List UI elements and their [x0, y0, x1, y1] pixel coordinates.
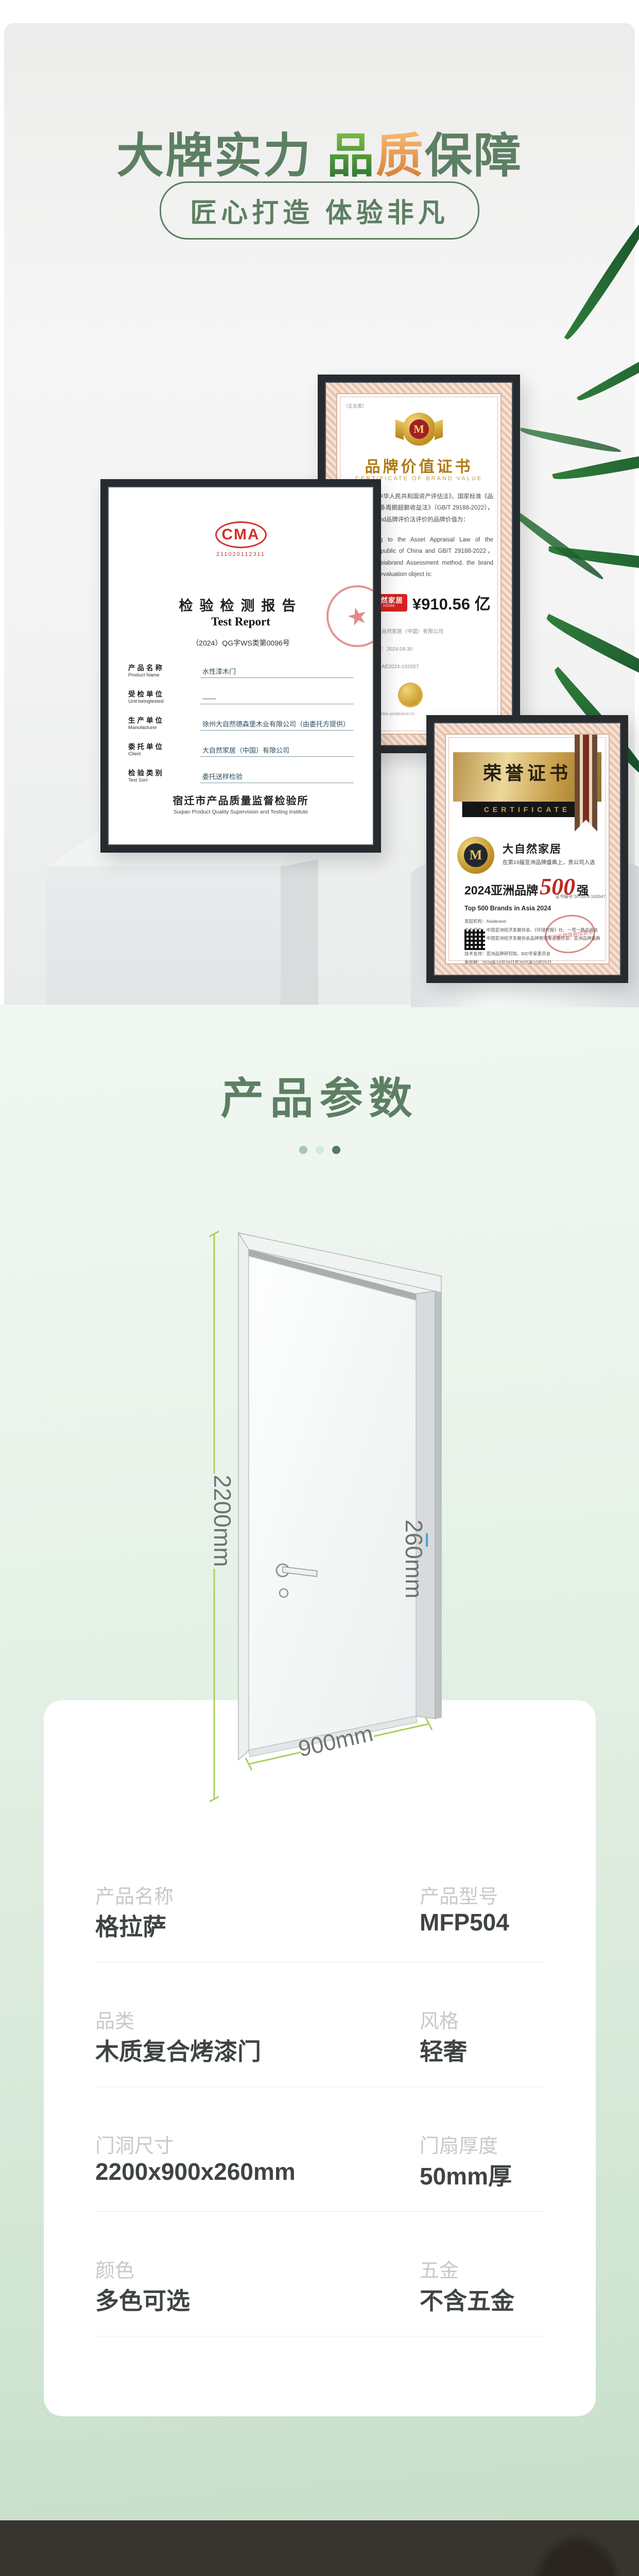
test-report-field-row: 产品名称Product Name 水性漆木门: [128, 657, 354, 678]
field-label: 生产单位: [128, 715, 200, 725]
field-value: 徐州大自然德森堡木业有限公司（由委托方提供）: [200, 719, 354, 731]
spec-value: 多色可选: [95, 2282, 190, 2316]
dim-depth-label: 260mm: [401, 1519, 427, 1598]
params-title-dots: [0, 1146, 639, 1157]
hero-title-part2: 保障: [425, 130, 523, 182]
plant-leaf: [543, 614, 639, 693]
spec-label: 门洞尺寸: [95, 2130, 174, 2158]
test-report-field-row: 检验类别Test Sort 委托送样检验: [128, 762, 354, 783]
field-label-en: Product Name: [128, 672, 200, 678]
honor-line1: 在第19届亚洲品牌盛典上，贵公司入选: [503, 858, 595, 866]
divider: [95, 2211, 544, 2212]
hero-title-highlight-orange: 质: [376, 130, 425, 182]
test-report-org: 宿迁市产品质量监督检验所: [109, 792, 373, 807]
dim-height-label: 2200mm: [209, 1475, 236, 1567]
pedestal-side: [281, 859, 318, 1006]
cma-logo: CMA: [215, 521, 267, 548]
plant-leaf: [577, 325, 639, 406]
award-prefix: 2024亚洲品牌: [464, 880, 538, 898]
honor-award-en: Top 500 Brands in Asia 2024: [464, 905, 551, 912]
field-value: 委托送样检验: [200, 771, 354, 783]
field-label: 委托单位: [128, 741, 200, 751]
spec-label: 五金: [420, 2255, 459, 2283]
test-report-field-row: 委托单位Client 大自然家居（中国）有限公司: [128, 736, 354, 757]
brand-value-category: （企业类）: [343, 402, 367, 409]
spec-value: 50mm厚: [420, 2158, 512, 2192]
plant-leaf: [520, 428, 623, 453]
field-label-en: Test Sort: [128, 777, 200, 783]
honor-medal-icon: M: [457, 837, 494, 874]
meta-line: 技术支持：亚洲品牌研究院、BID专家委员会: [464, 951, 603, 958]
hero-badge: 匠心打造 体验非凡: [160, 181, 479, 240]
field-label: 产品名称: [128, 662, 200, 672]
hero-title: 大牌实力 品质保障: [0, 117, 639, 186]
test-report-doc-number: （2024）QG字WS类第0096号: [109, 638, 373, 648]
hero-badge-wrap: 匠心打造 体验非凡: [0, 181, 639, 240]
honor-border: 荣誉证书 CERTIFICATE M 大自然家居 在第19届亚洲品牌盛典上，贵公…: [435, 723, 620, 975]
field-label-en: Unit beingtested: [128, 699, 200, 704]
pedestal-front: [46, 867, 281, 1006]
spec-value: 不含五金: [420, 2282, 514, 2316]
service-agent-photo: [418, 2520, 639, 2576]
spec-label: 门扇厚度: [420, 2130, 498, 2158]
certificate-honor: 荣誉证书 CERTIFICATE M 大自然家居 在第19届亚洲品牌盛典上，贵公…: [426, 715, 628, 983]
spec-label: 颜色: [95, 2255, 134, 2283]
spec-label: 产品型号: [420, 1880, 498, 1909]
door-diagram: 2200mm 260mm 900mm: [0, 1185, 639, 1829]
field-value: 大自然家居（中国）有限公司: [200, 745, 354, 757]
product-detail-page: 大牌实力 品质保障 匠心打造 体验非凡 CMA 211020112311 检验检…: [0, 0, 639, 2576]
door-panel: [249, 1256, 416, 1750]
spec-label: 品类: [95, 2005, 134, 2033]
dot-icon: [332, 1146, 340, 1154]
field-value: 水性漆木门: [200, 666, 354, 678]
hero-title-part1: 大牌实力: [116, 130, 327, 182]
divider: [95, 2336, 544, 2336]
test-report-fields: 产品名称Product Name 水性漆木门 受检单位Unit beingtes…: [128, 657, 354, 789]
field-label: 受检单位: [128, 688, 200, 699]
brand-value-title: 品牌价值证书: [337, 454, 500, 477]
spec-value: 格拉萨: [95, 1908, 166, 1942]
service-section: [0, 2520, 639, 2576]
divider: [95, 1962, 544, 1962]
field-label-en: Manufacturer: [128, 725, 200, 731]
spec-value: 2200x900x260mm: [95, 2158, 296, 2185]
gold-medal-icon: M: [403, 413, 436, 446]
honor-brand: 大自然家居: [503, 841, 562, 856]
certificate-test-report: CMA 211020112311 检验检测报告 Test Report （202…: [100, 479, 381, 853]
test-report-field-row: 受检单位Unit beingtested ——: [128, 684, 354, 704]
gold-seal-icon: [398, 683, 423, 707]
dot-icon: [316, 1146, 324, 1154]
test-report-field-row: 生产单位Manufacturer 徐州大自然德森堡木业有限公司（由委托方提供）: [128, 710, 354, 731]
spec-value: 木质复合烤漆门: [95, 2033, 261, 2067]
field-label: 检验类别: [128, 767, 200, 777]
honor-paper: 荣誉证书 CERTIFICATE M 大自然家居 在第19届亚洲品牌盛典上，贵公…: [445, 734, 610, 964]
spec-value: MFP504: [420, 1908, 509, 1936]
dot-icon: [299, 1146, 307, 1154]
params-title: 产品参数: [0, 1064, 639, 1126]
honor-banner: CERTIFICATE: [462, 802, 593, 817]
hero-title-highlight-green: 品: [327, 130, 376, 182]
honor-cert-number: 证书编号:SP2024-100047: [555, 893, 606, 900]
field-value: ——: [200, 694, 354, 704]
ribbon-icon: [575, 734, 597, 832]
field-label-en: Client: [128, 751, 200, 757]
spec-label: 产品名称: [95, 1880, 174, 1909]
divider: [95, 2087, 544, 2087]
test-report-org-en: Suqian Product Quality Supervision and T…: [109, 809, 373, 815]
cma-number: 211020112311: [109, 551, 373, 557]
spec-label: 风格: [420, 2005, 459, 2033]
qr-code-icon: [464, 929, 485, 950]
meta-line: 有效期：2024年10月26日至2025年10月25日: [464, 959, 603, 964]
brand-value-amount: ¥910.56 亿: [412, 591, 491, 614]
test-report-paper: CMA 211020112311 检验检测报告 Test Report （202…: [109, 487, 373, 844]
spec-value: 轻奢: [420, 2033, 467, 2067]
